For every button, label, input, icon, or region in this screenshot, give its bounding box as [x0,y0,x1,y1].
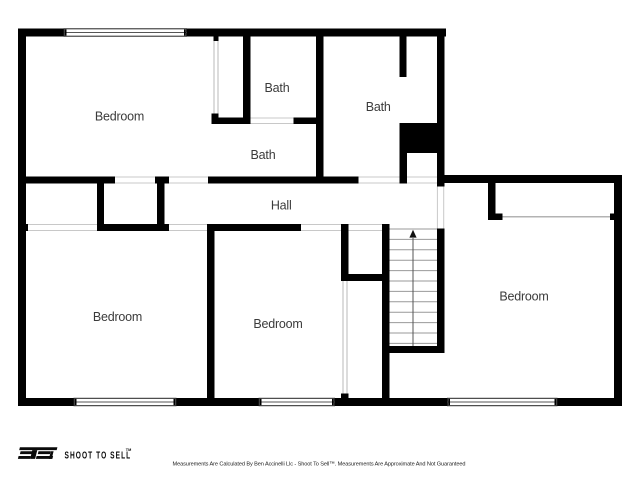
svg-text:Bedroom: Bedroom [95,110,144,124]
svg-text:TM: TM [126,448,131,452]
svg-text:Bath: Bath [366,100,391,114]
svg-text:Bath: Bath [265,81,290,95]
svg-text:Bedroom: Bedroom [499,289,548,303]
svg-text:Measurements Are Calculated By: Measurements Are Calculated By Ben Accin… [173,462,466,468]
svg-text:Hall: Hall [271,199,292,213]
svg-text:Bedroom: Bedroom [93,310,142,324]
svg-text:Bedroom: Bedroom [253,317,302,331]
svg-text:Bath: Bath [251,148,276,162]
svg-text:SHOOT TO SELL: SHOOT TO SELL [65,449,132,461]
